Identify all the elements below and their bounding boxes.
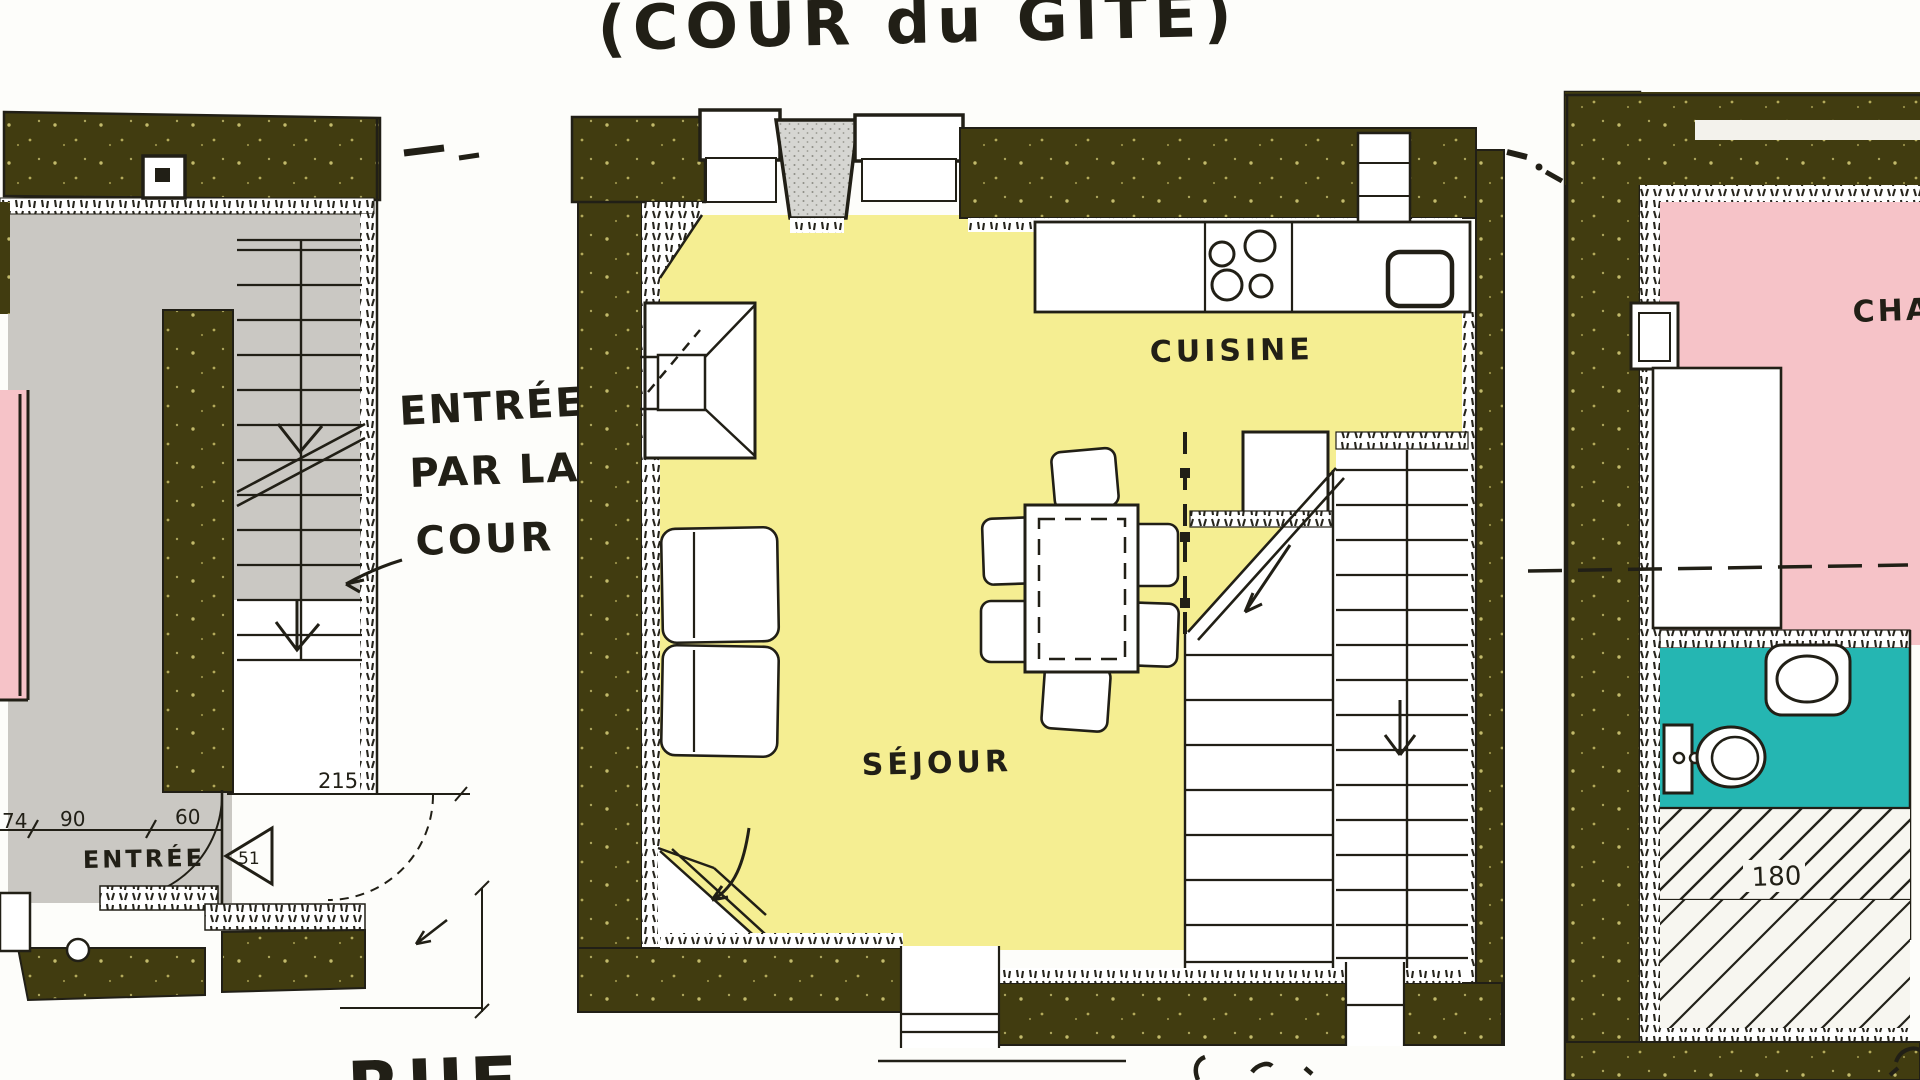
right-plan: CHAMBRE 180 xyxy=(1528,92,1920,1080)
wall-circle-fixture xyxy=(67,939,89,961)
center-right-wall xyxy=(1476,150,1504,1045)
left-plan-top-wall-hatch xyxy=(0,198,374,214)
dining-chair-bottom xyxy=(1041,664,1111,732)
right-bottom-hatch xyxy=(1660,1028,1910,1042)
living-room-label: SÉJOUR xyxy=(861,743,1012,783)
right-top-wall-slit xyxy=(1695,120,1920,140)
dim-215: 215 xyxy=(318,769,358,793)
toilet xyxy=(1664,725,1765,793)
bed xyxy=(1653,368,1781,628)
partial-text-strokes-center xyxy=(1196,1057,1312,1080)
armchair-1 xyxy=(661,527,779,643)
kitchen-sink xyxy=(1388,252,1452,306)
understair-area xyxy=(232,600,377,795)
entry-note: ENTRÉE PAR LA COUR xyxy=(346,377,586,592)
separator-dashes-left xyxy=(404,148,479,158)
page-title: (COUR du GÎTE) xyxy=(597,0,1240,65)
courtyard-door-hatch xyxy=(790,218,844,233)
courtyard-door-opening xyxy=(776,120,858,218)
right-left-wall xyxy=(1565,92,1640,1080)
dim-74: 74 xyxy=(2,809,27,833)
dim-60: 60 xyxy=(175,805,200,829)
right-top-hatch xyxy=(1640,185,1920,202)
window-1-sill xyxy=(706,158,776,202)
center-plan: CUISINE SÉJOUR xyxy=(572,110,1504,1061)
left-pink-room xyxy=(0,390,28,700)
bottom-wall-niche xyxy=(0,893,30,951)
entry-note-line1: ENTRÉE xyxy=(398,377,586,435)
wall-fixture-dot xyxy=(155,168,170,182)
left-plan-bottom-walls xyxy=(0,886,365,1000)
bathroom-sink-basin xyxy=(1777,656,1837,702)
left-plan-right-wall-hatch xyxy=(360,214,376,792)
entrance-label: ENTRÉE xyxy=(83,843,206,874)
window-3 xyxy=(1358,133,1410,223)
separator-dashes-right xyxy=(1507,152,1562,181)
right-bottom-wall xyxy=(1565,1042,1920,1080)
window-2-sill xyxy=(862,159,956,201)
armchair-2 xyxy=(661,645,779,757)
street-label: RUE xyxy=(346,1041,525,1080)
center-left-wall xyxy=(578,200,642,955)
floor-plan-scan: (COUR du GÎTE) xyxy=(0,0,1920,1080)
kitchen-label: CUISINE xyxy=(1150,332,1315,370)
window-1 xyxy=(700,110,780,160)
up-left-arrow xyxy=(416,920,447,944)
under-stair-hatch-b xyxy=(1660,900,1910,1028)
bedroom-label: CHAMBRE xyxy=(1852,288,1920,330)
dining-chair-top xyxy=(1051,447,1120,510)
left-plan: 74 90 60 ENTRÉE 51 215 RUE xyxy=(0,112,525,1080)
courtyard-door-arc-dashed xyxy=(328,795,433,900)
door-ref-label: 51 xyxy=(238,849,260,869)
stair-hatch-top xyxy=(1336,432,1468,449)
center-topleft-wall xyxy=(572,117,705,202)
entry-note-line3: COUR xyxy=(415,514,555,565)
fireplace xyxy=(640,303,755,458)
dining-table xyxy=(1025,505,1138,672)
dim-180: 180 xyxy=(1751,861,1802,893)
stair-closet xyxy=(1243,432,1328,518)
entry-note-line2: PAR LA xyxy=(409,445,580,497)
left-edge-wall xyxy=(0,202,10,314)
staircase-center xyxy=(1180,432,1468,985)
dim-90: 90 xyxy=(60,807,85,831)
window-2 xyxy=(855,115,963,161)
stair-core-wall xyxy=(163,310,233,792)
toilet-button-1 xyxy=(1674,753,1684,763)
left-plan-top-wall xyxy=(4,112,380,200)
